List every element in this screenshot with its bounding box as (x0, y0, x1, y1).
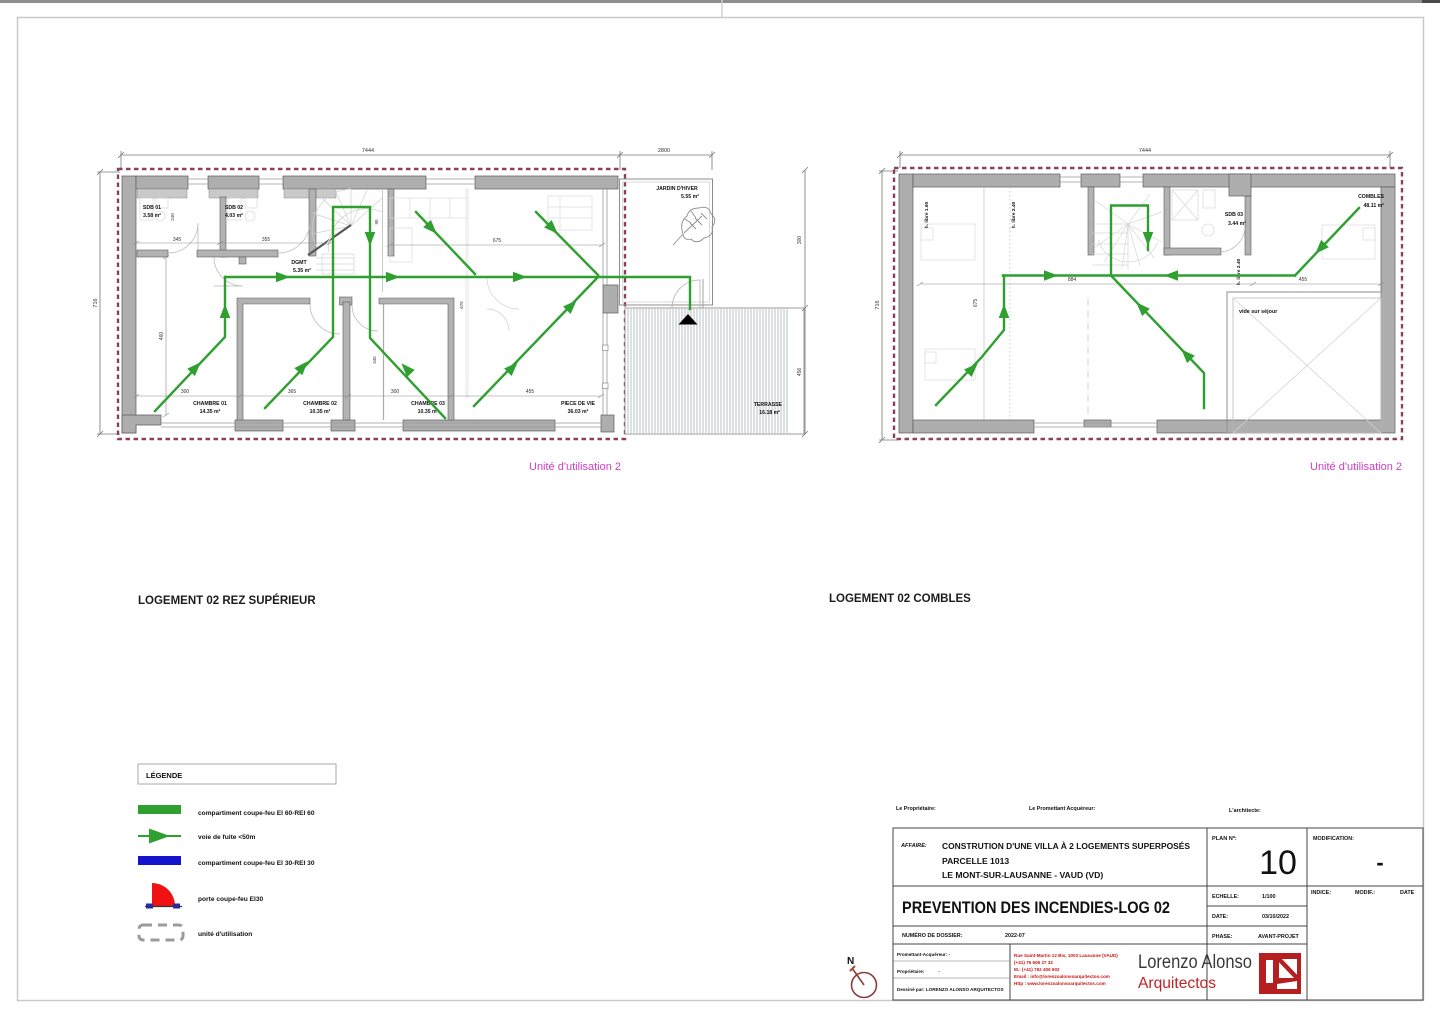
svg-text:CHAMBRE 02: CHAMBRE 02 (303, 401, 337, 407)
svg-text:300: 300 (391, 389, 400, 395)
svg-text:COMBLES: COMBLES (1358, 194, 1384, 200)
svg-text:675: 675 (493, 238, 502, 244)
svg-text:AFFAIRE:: AFFAIRE: (900, 843, 927, 849)
svg-text:365: 365 (288, 389, 297, 395)
svg-text:porte coupe-feu EI30: porte coupe-feu EI30 (198, 896, 264, 903)
svg-text:5.35 m²: 5.35 m² (293, 268, 311, 274)
svg-text:345: 345 (173, 237, 182, 243)
svg-text:1/100: 1/100 (1262, 894, 1276, 900)
svg-text:SDB 02: SDB 02 (225, 205, 243, 211)
svg-text:LÉGENDE: LÉGENDE (146, 771, 182, 780)
svg-text:Arquitectos: Arquitectos (1138, 975, 1216, 992)
svg-text:PARCELLE 1013: PARCELLE 1013 (942, 856, 1009, 866)
svg-text:CHAMBRE 01: CHAMBRE 01 (193, 401, 227, 407)
svg-text:N: N (847, 956, 854, 967)
svg-text:10.35 m²: 10.35 m² (310, 409, 331, 415)
svg-text:unité d'utilisation: unité d'utilisation (198, 931, 252, 938)
svg-text:CONSTRUTION D'UNE VILLA À 2 LO: CONSTRUTION D'UNE VILLA À 2 LOGEMENTS SU… (942, 841, 1190, 851)
svg-text:455: 455 (1299, 277, 1308, 283)
svg-text:Http : www.lorenzoalonsoarquit: Http : www.lorenzoalonsoarquitectos.com (1014, 981, 1106, 986)
svg-text:Le Propriétaire:: Le Propriétaire: (896, 806, 936, 812)
svg-text:JARDIN D'HIVER: JARDIN D'HIVER (656, 186, 698, 192)
svg-text:SDB 03: SDB 03 (1225, 212, 1243, 218)
svg-text:Email : info@lorenzoalonsoarqu: Email : info@lorenzoalonsoarquitectos.co… (1014, 974, 1110, 979)
svg-text:355: 355 (262, 237, 271, 243)
svg-text:90: 90 (374, 219, 379, 225)
svg-text:h. libre 2.40: h. libre 2.40 (1011, 201, 1017, 228)
svg-text:300: 300 (797, 236, 803, 245)
svg-text:03/10/2022: 03/10/2022 (1262, 914, 1289, 920)
svg-text:4.03 m²: 4.03 m² (225, 213, 243, 219)
svg-text:LE MONT-SUR-LAUSANNE - VAUD (V: LE MONT-SUR-LAUSANNE - VAUD (VD) (942, 870, 1103, 880)
svg-text:MODIFICATION:: MODIFICATION: (1313, 836, 1354, 842)
svg-text:240: 240 (170, 213, 175, 221)
svg-text:36.03 m²: 36.03 m² (568, 409, 589, 415)
svg-text:460: 460 (159, 332, 165, 341)
svg-text:884: 884 (1068, 277, 1077, 283)
svg-text:PLAN Nº:: PLAN Nº: (1212, 836, 1237, 842)
svg-text:Unité d'utilisation 2: Unité d'utilisation 2 (1310, 461, 1402, 473)
svg-text:DGMT: DGMT (291, 260, 307, 266)
svg-text:2022-07: 2022-07 (1005, 933, 1025, 939)
svg-text:Propriétaire: -: Propriétaire: - (897, 969, 940, 974)
svg-text:PREVENTION DES INCENDIES-LOG 0: PREVENTION DES INCENDIES-LOG 02 (902, 899, 1170, 917)
svg-text:DATE: DATE (1400, 890, 1415, 896)
svg-text:h. libre 1.60: h. libre 1.60 (924, 201, 930, 228)
svg-text:CHAMBRE 03: CHAMBRE 03 (411, 401, 445, 407)
svg-text:5.55 m²: 5.55 m² (681, 194, 699, 200)
svg-text:7444: 7444 (362, 148, 374, 154)
svg-text:vide sur séjour: vide sur séjour (1239, 309, 1278, 315)
svg-text:h. libre 2.40: h. libre 2.40 (1236, 258, 1242, 285)
svg-text:TERRASSE: TERRASSE (754, 402, 783, 408)
svg-text:SDB 01: SDB 01 (143, 205, 161, 211)
svg-text:716: 716 (875, 300, 881, 309)
svg-text:Promettant-Acquéreur: -: Promettant-Acquéreur: - (897, 952, 951, 957)
svg-text:14.35 m²: 14.35 m² (200, 409, 221, 415)
svg-text:716: 716 (93, 298, 99, 307)
svg-text:3.58 m²: 3.58 m² (143, 213, 161, 219)
svg-text:LOGEMENT 02 REZ SUPÉRIEUR: LOGEMENT 02 REZ SUPÉRIEUR (138, 594, 316, 607)
svg-text:456: 456 (797, 368, 803, 377)
svg-text:48.11 m²: 48.11 m² (1364, 203, 1385, 209)
svg-text:3.44 m²: 3.44 m² (1228, 221, 1246, 227)
svg-text:DATE:: DATE: (1212, 914, 1228, 920)
svg-text:16.18 m²: 16.18 m² (759, 410, 780, 416)
svg-text:Dessiné par: LORENZO ALONSO AR: Dessiné par: LORENZO ALONSO ARQUITECTOS (897, 987, 1004, 992)
svg-text:-: - (1376, 850, 1383, 875)
svg-text:7444: 7444 (1139, 148, 1151, 154)
svg-text:2800: 2800 (658, 148, 670, 154)
svg-text:compartiment coupe-feu EI 60-R: compartiment coupe-feu EI 60-REI 60 (198, 810, 315, 817)
svg-text:10.35 m²: 10.35 m² (418, 409, 439, 415)
svg-text:345: 345 (372, 356, 377, 364)
svg-text:PIECE DE VIE: PIECE DE VIE (561, 401, 596, 407)
svg-text:voie de fuite <50m: voie de fuite <50m (198, 834, 255, 841)
svg-text:MODIF.:: MODIF.: (1355, 890, 1375, 896)
svg-text:455: 455 (526, 389, 535, 395)
svg-text:L'architecte:: L'architecte: (1229, 808, 1261, 814)
svg-text:M.: (+41) 762 406 602: M.: (+41) 762 406 602 (1014, 967, 1060, 972)
svg-text:INDICE:: INDICE: (1311, 890, 1331, 896)
svg-text:NUMÉRO DE DOSSIER:: NUMÉRO DE DOSSIER: (902, 931, 963, 939)
svg-text:Unité d'utilisation 2: Unité d'utilisation 2 (529, 461, 621, 473)
svg-text:Rue Saint-Martin 12 Bis, 1003: Rue Saint-Martin 12 Bis, 1003 Lausanne (… (1014, 953, 1118, 958)
svg-text:PHASE:: PHASE: (1212, 934, 1233, 940)
svg-text:(+41) 76 606 27 32: (+41) 76 606 27 32 (1014, 960, 1053, 965)
svg-text:AVANT-PROJET: AVANT-PROJET (1258, 934, 1300, 940)
svg-text:675: 675 (973, 299, 979, 308)
svg-text:Le Promettant Acquéreur:: Le Promettant Acquéreur: (1029, 806, 1096, 812)
svg-text:compartiment coupe-feu EI 30-R: compartiment coupe-feu EI 30-REI 30 (198, 860, 315, 867)
svg-text:10: 10 (1259, 844, 1297, 882)
svg-text:675: 675 (459, 301, 464, 309)
svg-text:ECHELLE:: ECHELLE: (1212, 894, 1239, 900)
svg-text:300: 300 (181, 389, 190, 395)
svg-text:Lorenzo Alonso: Lorenzo Alonso (1138, 952, 1252, 973)
svg-text:LOGEMENT 02 COMBLES: LOGEMENT 02 COMBLES (829, 593, 971, 605)
